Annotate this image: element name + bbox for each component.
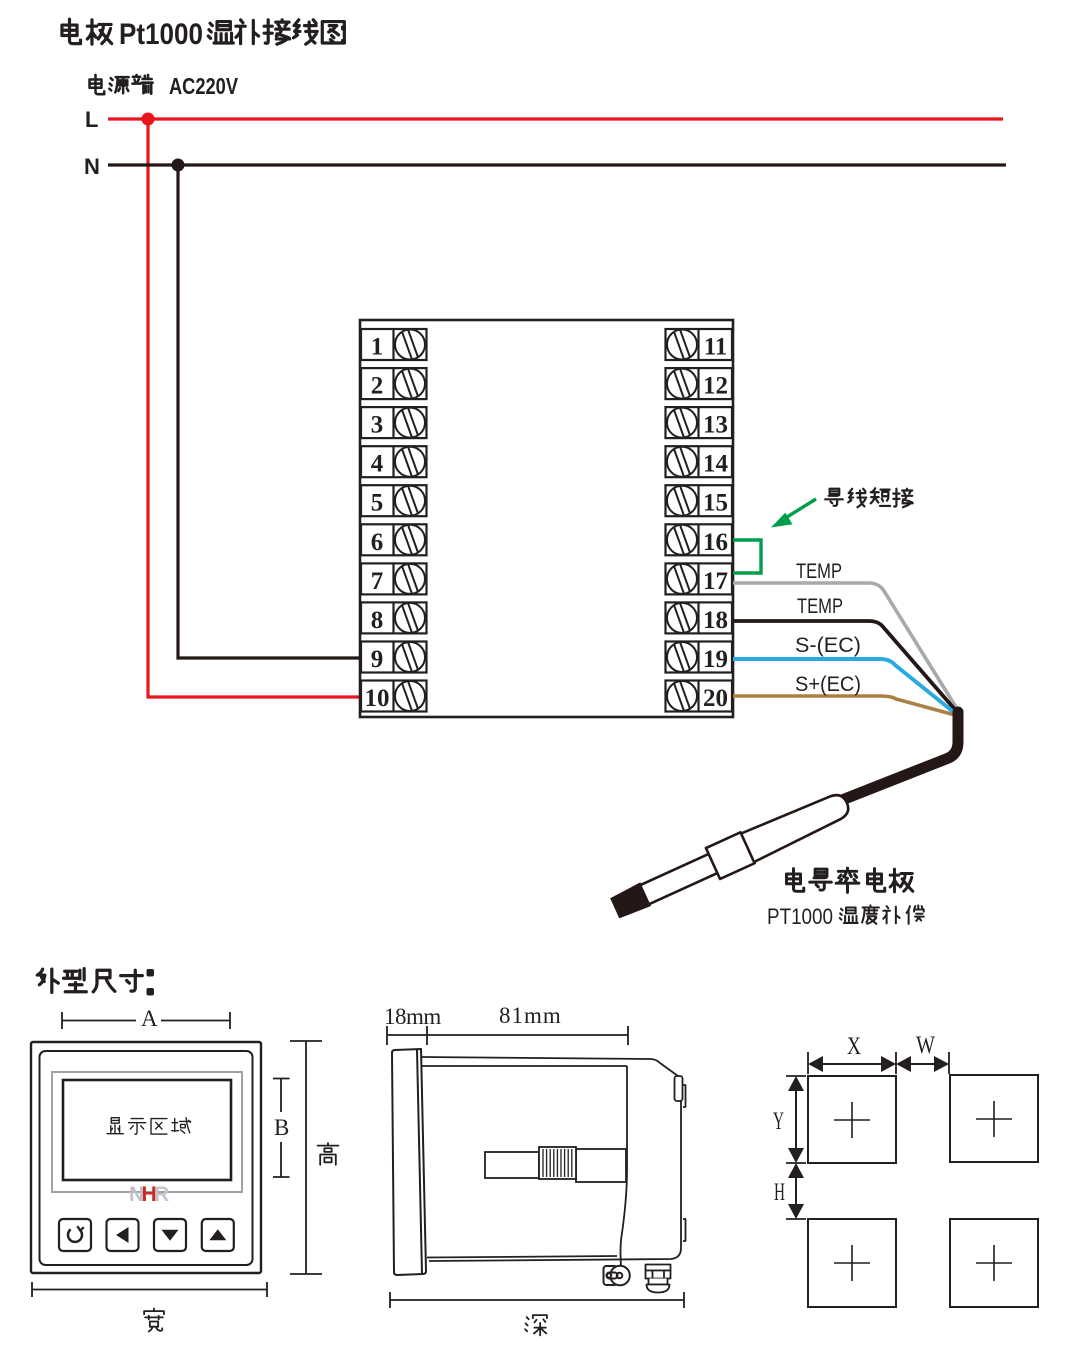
svg-text:S-(EC): S-(EC) [795,634,861,657]
svg-text:15: 15 [703,490,728,517]
svg-text:9: 9 [371,646,384,673]
svg-text:PT1000: PT1000 [767,904,833,929]
svg-text:AC220V: AC220V [169,73,239,99]
svg-text:6: 6 [371,529,384,556]
svg-text:7: 7 [371,568,384,595]
svg-text:TEMP: TEMP [796,560,842,583]
svg-text:18mm: 18mm [384,1004,441,1029]
svg-text:L: L [85,107,98,132]
svg-text:Y: Y [773,1108,784,1135]
svg-text:5: 5 [371,490,384,517]
svg-text:17: 17 [703,568,728,595]
svg-text:3: 3 [371,412,384,439]
svg-text:Pt1000: Pt1000 [119,18,203,51]
svg-text:10: 10 [365,685,390,712]
svg-text:2: 2 [371,373,384,400]
svg-text:A: A [141,1006,158,1031]
svg-text:81mm: 81mm [499,1003,562,1028]
svg-text:4: 4 [371,451,384,478]
svg-text:N: N [84,154,100,179]
svg-text:TEMP: TEMP [797,595,843,618]
svg-text:12: 12 [703,373,728,400]
svg-text:1: 1 [371,334,384,361]
svg-text:8: 8 [371,607,384,634]
svg-text:20: 20 [703,685,728,712]
svg-text:B: B [274,1115,289,1140]
svg-text:13: 13 [703,412,728,439]
svg-text:16: 16 [703,529,728,556]
svg-text:19: 19 [703,646,728,673]
svg-text:14: 14 [703,451,729,478]
svg-text:R: R [154,1183,169,1206]
svg-text:X: X [847,1033,861,1060]
svg-text:H: H [774,1179,785,1206]
svg-text:11: 11 [704,334,728,361]
svg-text:S+(EC): S+(EC) [795,673,861,696]
svg-text:W: W [916,1032,935,1059]
svg-text:18: 18 [703,607,728,634]
